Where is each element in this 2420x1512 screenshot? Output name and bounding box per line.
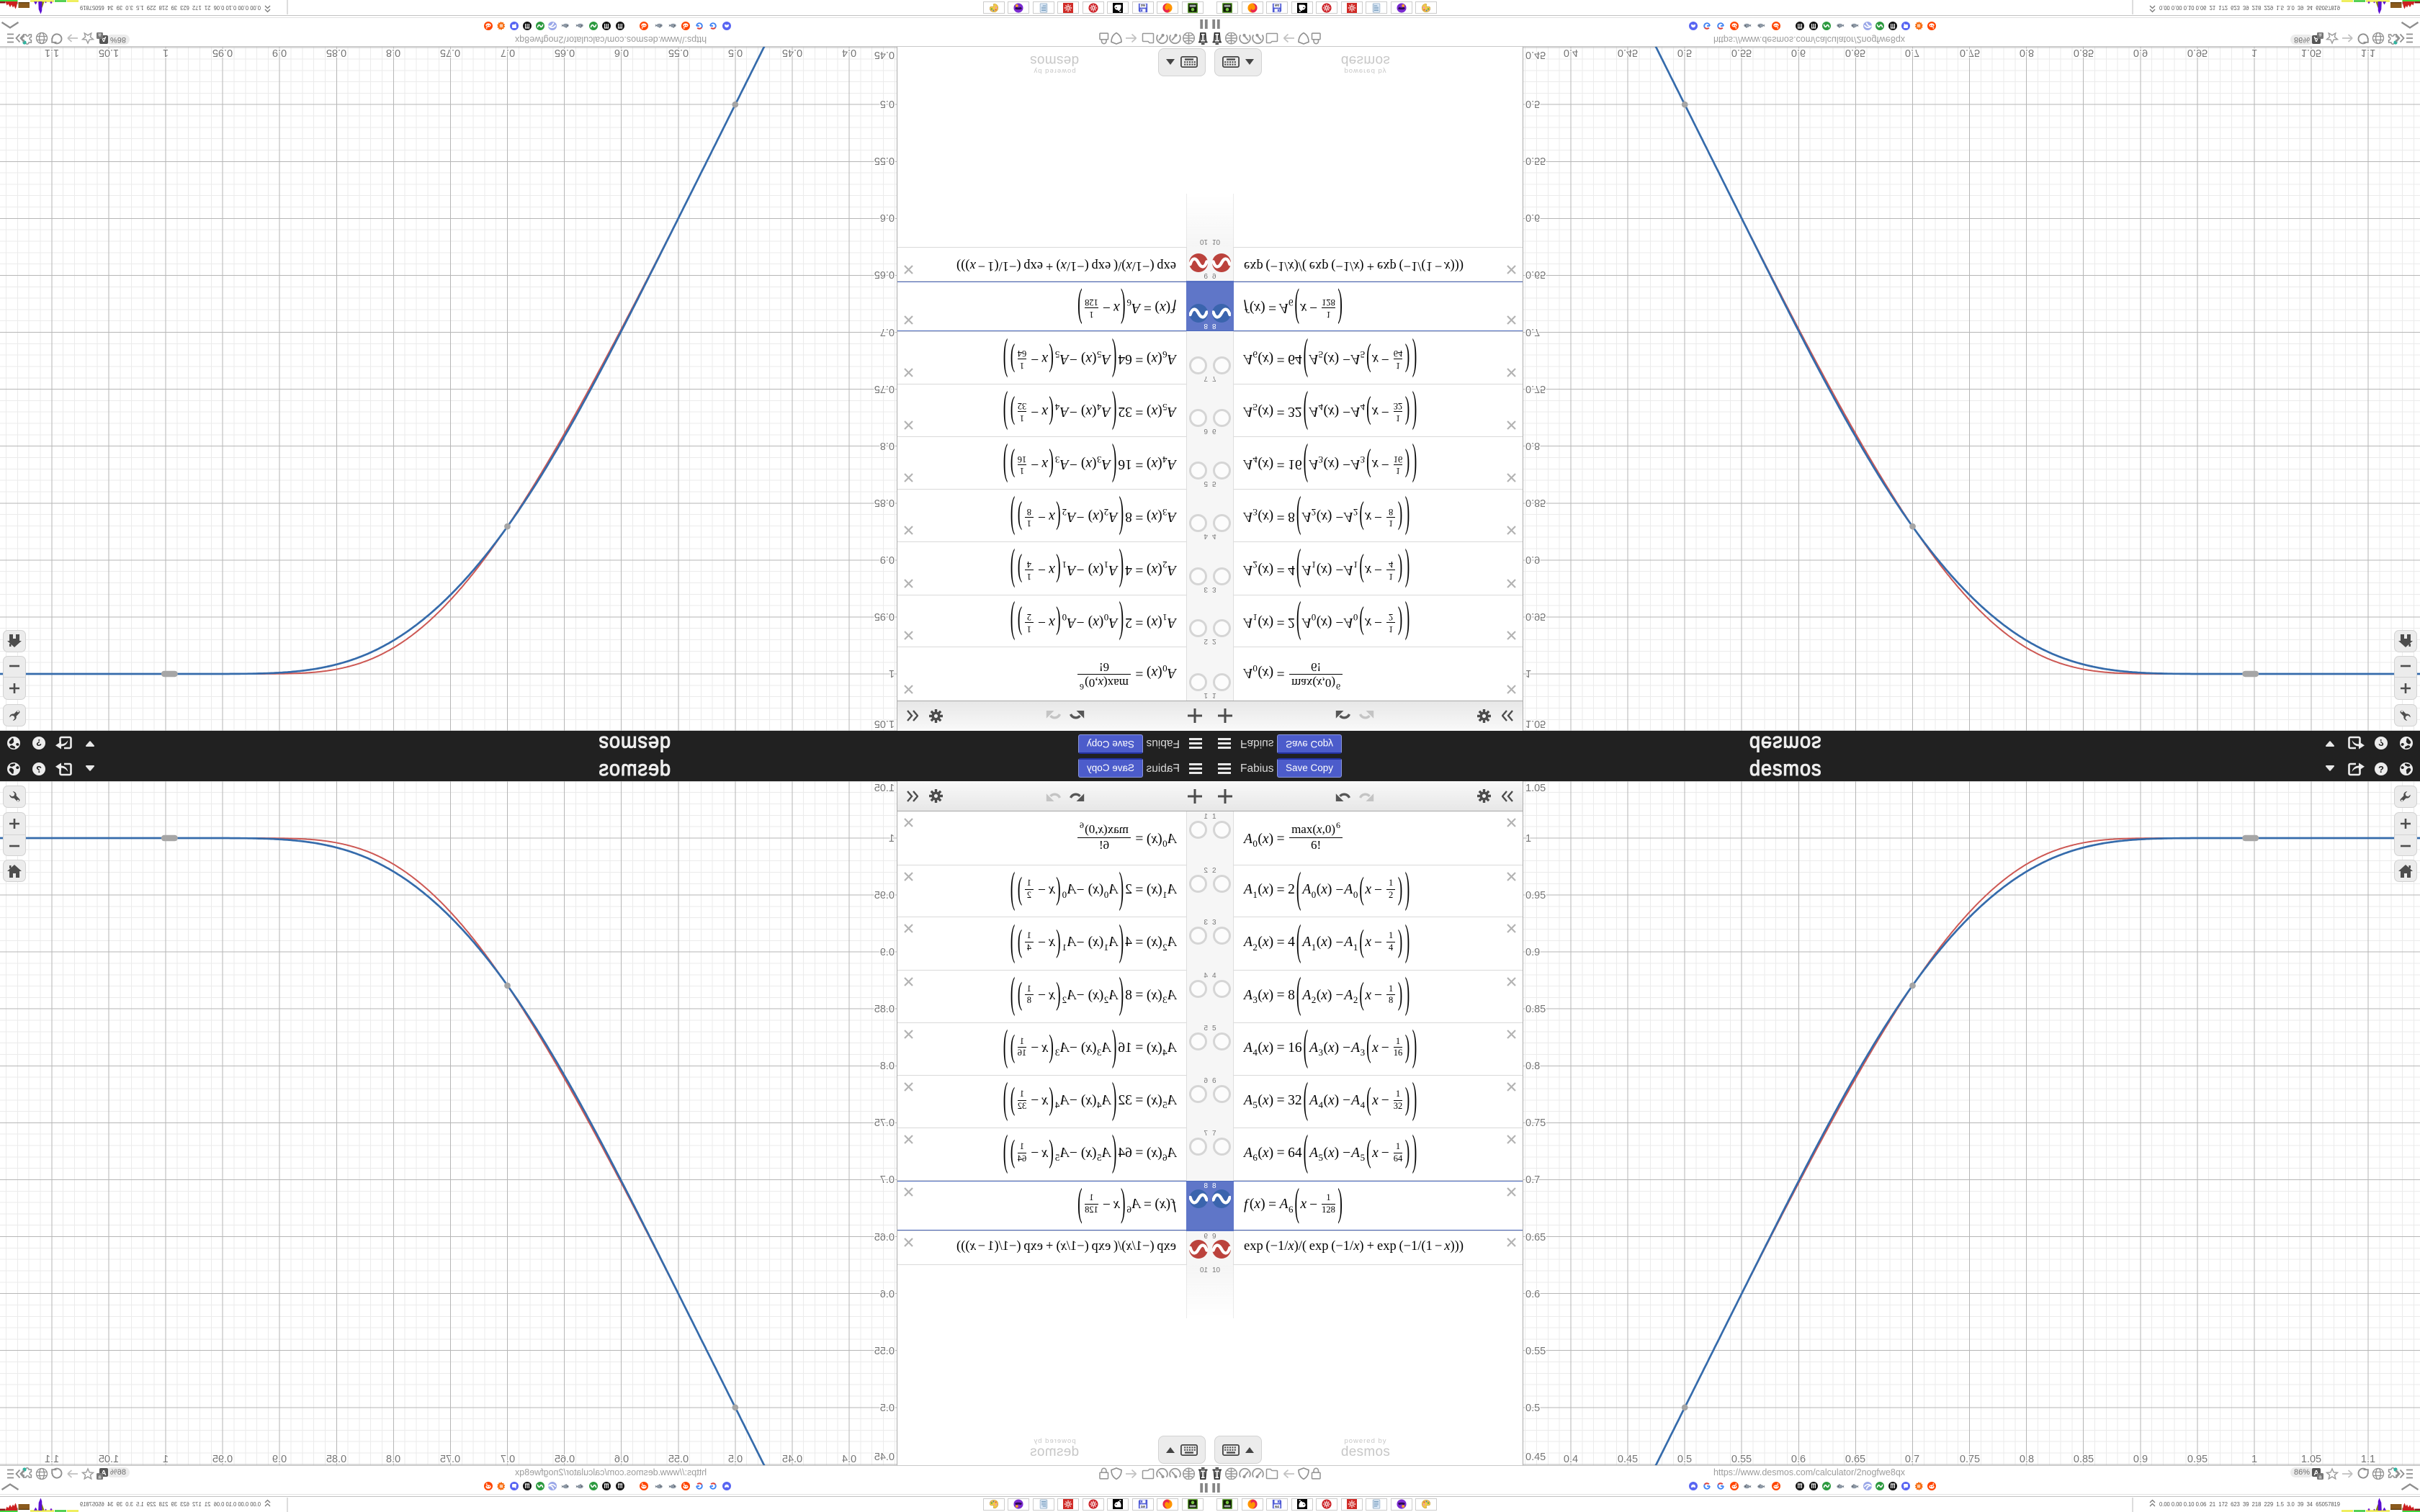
- svg-text:1: 1: [1525, 667, 1531, 679]
- svg-text:0.45: 0.45: [1525, 49, 1546, 60]
- svg-text:0.45: 0.45: [782, 47, 802, 58]
- svg-text:0.65: 0.65: [874, 1232, 895, 1243]
- svg-text:0.5: 0.5: [1677, 47, 1692, 58]
- svg-text:0.45: 0.45: [874, 49, 895, 60]
- svg-text:0.5: 0.5: [728, 1454, 743, 1465]
- svg-text:0.7: 0.7: [1905, 47, 1919, 58]
- svg-text:1: 1: [2251, 1454, 2257, 1465]
- svg-text:0.75: 0.75: [874, 1117, 895, 1129]
- svg-text:0.95: 0.95: [212, 47, 233, 58]
- svg-text:0.5: 0.5: [1677, 1454, 1692, 1465]
- svg-text:0.45: 0.45: [1525, 1452, 1546, 1463]
- svg-text:0.5: 0.5: [880, 98, 895, 109]
- svg-text:0.8: 0.8: [2020, 1454, 2034, 1465]
- svg-text:0.4: 0.4: [842, 1454, 856, 1465]
- svg-text:0.6: 0.6: [614, 1454, 629, 1465]
- svg-text:0.85: 0.85: [326, 47, 346, 58]
- svg-text:0.5: 0.5: [880, 1403, 895, 1414]
- svg-text:0.8: 0.8: [386, 47, 400, 58]
- svg-text:1: 1: [889, 833, 895, 845]
- svg-text:64: 64: [1275, 3, 1279, 7]
- svg-text:1: 1: [1525, 833, 1531, 845]
- svg-text:1.05: 1.05: [99, 1454, 119, 1465]
- svg-text:a: a: [98, 32, 102, 39]
- svg-text:0.6: 0.6: [1525, 1289, 1540, 1300]
- svg-text:1.05: 1.05: [1525, 718, 1546, 729]
- svg-text:0.4: 0.4: [1564, 47, 1578, 58]
- svg-text:0.85: 0.85: [2074, 47, 2094, 58]
- svg-text:0.8: 0.8: [880, 1061, 895, 1072]
- svg-text:0.7: 0.7: [501, 1454, 515, 1465]
- svg-text:0.65: 0.65: [555, 1454, 575, 1465]
- svg-text:0.85: 0.85: [326, 1454, 346, 1465]
- svg-text:0.95: 0.95: [1525, 890, 1546, 901]
- svg-text:0.9: 0.9: [2133, 47, 2148, 58]
- svg-text:?: ?: [2378, 764, 2384, 775]
- svg-text:0.75: 0.75: [874, 383, 895, 395]
- svg-text:0.9: 0.9: [272, 47, 287, 58]
- svg-text:0.4: 0.4: [842, 47, 856, 58]
- svg-text:0.45: 0.45: [782, 1454, 802, 1465]
- svg-text:0.6: 0.6: [880, 212, 895, 223]
- svg-text:0.00 0.00 0.10 0.06 21 172: 0.00 0.00 0.10 0.06 21 172 623 39 218 22…: [2159, 4, 2340, 12]
- svg-text:1.1: 1.1: [2361, 47, 2375, 58]
- svg-text:1.05: 1.05: [874, 718, 895, 729]
- svg-text:0.9: 0.9: [880, 554, 895, 565]
- svg-text:0.75: 0.75: [1960, 1454, 1980, 1465]
- svg-text:1.1: 1.1: [45, 47, 59, 58]
- svg-text:0.65: 0.65: [1845, 1454, 1865, 1465]
- svg-text:0.95: 0.95: [212, 1454, 233, 1465]
- svg-text:0.8: 0.8: [386, 1454, 400, 1465]
- svg-text:0.55: 0.55: [874, 1346, 895, 1357]
- svg-text:0.65: 0.65: [1845, 47, 1865, 58]
- svg-text:0.8: 0.8: [880, 440, 895, 451]
- svg-text:0.55: 0.55: [1525, 155, 1546, 166]
- svg-text:0.55: 0.55: [668, 1454, 689, 1465]
- svg-text:1.1: 1.1: [2361, 1454, 2375, 1465]
- svg-text:0.7: 0.7: [1525, 326, 1540, 338]
- svg-text:0.5: 0.5: [728, 47, 743, 58]
- svg-text:64: 64: [1275, 1505, 1279, 1509]
- svg-text:1: 1: [889, 667, 895, 679]
- svg-text:0.65: 0.65: [1525, 269, 1546, 280]
- svg-text:0.00 0.00 0.10 0.06 21 172: 0.00 0.00 0.10 0.06 21 172 623 39 218 22…: [80, 4, 261, 12]
- svg-text:0.7: 0.7: [1525, 1174, 1540, 1186]
- svg-text:0.6: 0.6: [1525, 212, 1540, 223]
- svg-text:0.45: 0.45: [874, 1452, 895, 1463]
- svg-text:0.65: 0.65: [555, 47, 575, 58]
- svg-text:1: 1: [2251, 47, 2257, 58]
- svg-text:0.65: 0.65: [1525, 1232, 1546, 1243]
- svg-text:0.45: 0.45: [1618, 1454, 1638, 1465]
- svg-text:0.85: 0.85: [1525, 1004, 1546, 1015]
- svg-text:0.75: 0.75: [440, 47, 460, 58]
- svg-text:0.9: 0.9: [880, 947, 895, 958]
- svg-text:0.75: 0.75: [440, 1454, 460, 1465]
- svg-text:0.95: 0.95: [874, 890, 895, 901]
- svg-text:1.05: 1.05: [2301, 47, 2321, 58]
- svg-text:0.5: 0.5: [1525, 98, 1540, 109]
- svg-text:0.85: 0.85: [874, 497, 895, 508]
- svg-text:0.9: 0.9: [1525, 554, 1540, 565]
- svg-text:0.9: 0.9: [2133, 1454, 2148, 1465]
- svg-text:1.1: 1.1: [45, 1454, 59, 1465]
- svg-text:0.4: 0.4: [1564, 1454, 1578, 1465]
- svg-text:0.55: 0.55: [874, 155, 895, 166]
- svg-text:0.55: 0.55: [1731, 1454, 1752, 1465]
- svg-text:0.75: 0.75: [1525, 383, 1546, 395]
- svg-text:0.6: 0.6: [1791, 47, 1806, 58]
- svg-text:0.85: 0.85: [1525, 497, 1546, 508]
- svg-text:0.8: 0.8: [1525, 440, 1540, 451]
- svg-text:0.6: 0.6: [1791, 1454, 1806, 1465]
- svg-text:0.95: 0.95: [1525, 611, 1546, 622]
- svg-text:0.55: 0.55: [1731, 47, 1752, 58]
- svg-text:0.8: 0.8: [2020, 47, 2034, 58]
- svg-text:0.6: 0.6: [880, 1289, 895, 1300]
- svg-text:0.9: 0.9: [272, 1454, 287, 1465]
- svg-text:1.05: 1.05: [99, 47, 119, 58]
- svg-text:0.55: 0.55: [668, 47, 689, 58]
- svg-text:0.00 0.00 0.10 0.06 21 172: 0.00 0.00 0.10 0.06 21 172 623 39 218 22…: [80, 1500, 261, 1508]
- svg-text:0.95: 0.95: [2187, 1454, 2208, 1465]
- svg-text:1.05: 1.05: [874, 783, 895, 794]
- svg-text:0.65: 0.65: [874, 269, 895, 280]
- svg-text:0.7: 0.7: [880, 1174, 895, 1186]
- svg-text:0.8: 0.8: [1525, 1061, 1540, 1072]
- svg-text:?: ?: [36, 764, 42, 775]
- svg-text:0.95: 0.95: [874, 611, 895, 622]
- svg-text:1: 1: [163, 1454, 169, 1465]
- svg-text:0.95: 0.95: [2187, 47, 2208, 58]
- svg-text:0.00 0.00 0.10 0.06 21 172: 0.00 0.00 0.10 0.06 21 172 623 39 218 22…: [2159, 1500, 2340, 1508]
- svg-text:64: 64: [1141, 1505, 1145, 1509]
- svg-text:0.75: 0.75: [1525, 1117, 1546, 1129]
- svg-text:1: 1: [163, 47, 169, 58]
- svg-text:0.45: 0.45: [1618, 47, 1638, 58]
- svg-text:0.6: 0.6: [614, 47, 629, 58]
- svg-text:0.7: 0.7: [880, 326, 895, 338]
- svg-text:1.05: 1.05: [2301, 1454, 2321, 1465]
- svg-text:?: ?: [2378, 737, 2384, 748]
- svg-text:0.75: 0.75: [1960, 47, 1980, 58]
- svg-text:0.9: 0.9: [1525, 947, 1540, 958]
- svg-text:0.85: 0.85: [2074, 1454, 2094, 1465]
- svg-text:0.85: 0.85: [874, 1004, 895, 1015]
- svg-text:64: 64: [1141, 3, 1145, 7]
- svg-text:?: ?: [36, 737, 42, 748]
- svg-text:1.05: 1.05: [1525, 783, 1546, 794]
- svg-text:0.7: 0.7: [1905, 1454, 1919, 1465]
- svg-text:0.5: 0.5: [1525, 1403, 1540, 1414]
- svg-text:0.55: 0.55: [1525, 1346, 1546, 1357]
- svg-text:0.7: 0.7: [501, 47, 515, 58]
